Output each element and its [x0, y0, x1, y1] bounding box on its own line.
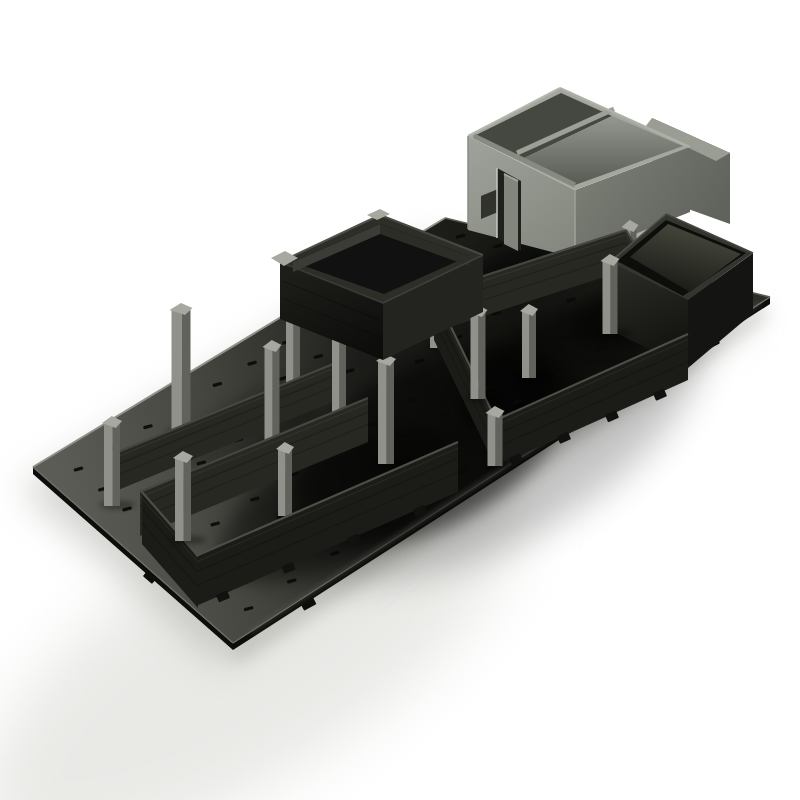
post-lit-face [488, 413, 496, 466]
post-lit-face [378, 361, 387, 464]
gray-container-notch [497, 168, 521, 251]
post-lit-face [265, 347, 273, 444]
notch-post [504, 174, 518, 251]
post-lit-face [175, 458, 184, 541]
post-shaded-face [496, 413, 503, 466]
post-lit-face [172, 310, 182, 433]
post-shaded-face [113, 423, 120, 506]
product-photo-canvas [0, 0, 800, 800]
post-lit-face [104, 423, 113, 506]
product-photo [0, 0, 800, 800]
post-shaded-face [387, 361, 394, 464]
post-shaded-face [286, 449, 292, 516]
post-shaded-face [530, 311, 536, 378]
post-lit-face [471, 312, 479, 399]
post-shaded-face [479, 312, 486, 399]
post-shaded-face [184, 458, 191, 541]
post-shaded-face [611, 261, 618, 334]
post-shaded-face [273, 347, 280, 444]
post-lit-face [603, 261, 611, 334]
post-lit-face [278, 449, 286, 516]
post-shaded-face [182, 310, 191, 433]
post-lit-face [522, 311, 530, 378]
